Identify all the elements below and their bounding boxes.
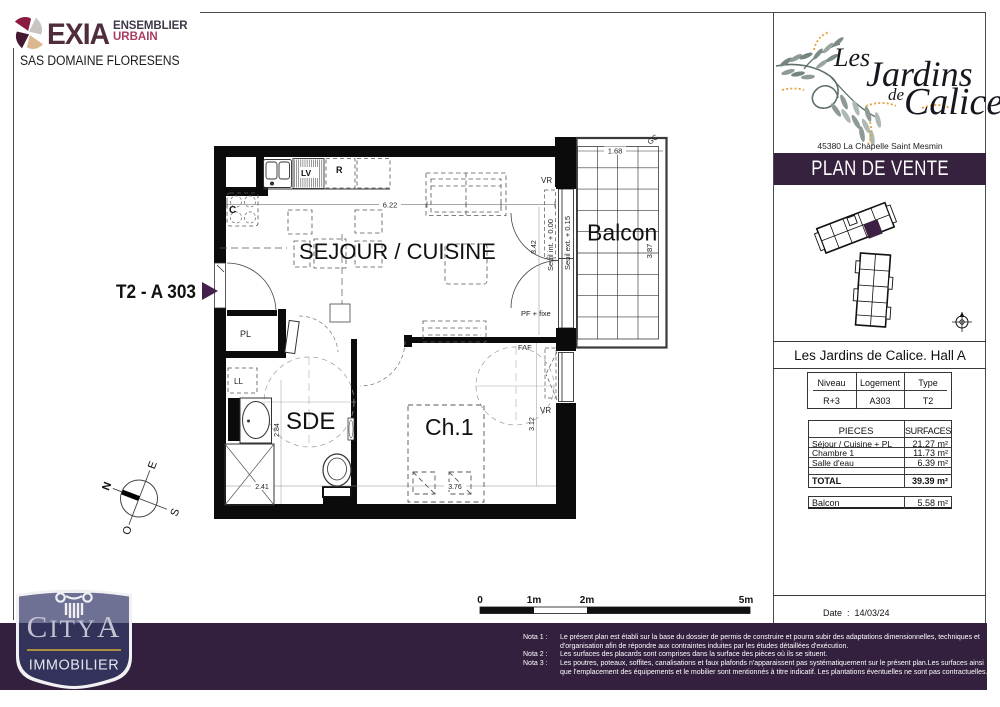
svg-text:2m: 2m	[580, 595, 595, 606]
svg-text:2.84: 2.84	[274, 423, 281, 437]
svg-text:SDE: SDE	[286, 408, 335, 435]
svg-text:E: E	[146, 460, 160, 471]
svg-text:LL: LL	[234, 377, 243, 386]
svg-text:LV: LV	[301, 168, 312, 178]
svg-text:5m: 5m	[739, 595, 754, 606]
svg-text:GC: GC	[646, 132, 661, 147]
svg-text:Seuil int. + 0.00: Seuil int. + 0.00	[546, 219, 555, 271]
svg-text:1.68: 1.68	[608, 147, 623, 156]
svg-text:T2 - A 303: T2 - A 303	[116, 282, 196, 303]
svg-text:Les: Les	[833, 43, 870, 72]
svg-text:3.76: 3.76	[448, 484, 462, 491]
svg-text:Calice: Calice	[904, 81, 1000, 123]
svg-text:S: S	[168, 507, 182, 518]
svg-text:IMMOBILIER: IMMOBILIER	[29, 658, 119, 674]
svg-text:VR: VR	[540, 406, 551, 415]
svg-text:C: C	[229, 205, 236, 216]
svg-text:1m: 1m	[527, 595, 542, 606]
svg-text:O: O	[121, 524, 135, 537]
svg-text:PL: PL	[240, 329, 251, 339]
svg-text:VR: VR	[541, 176, 552, 185]
svg-text:3.42: 3.42	[531, 240, 538, 254]
svg-text:6.22: 6.22	[383, 201, 398, 210]
svg-text:0: 0	[477, 595, 483, 606]
svg-text:de: de	[888, 85, 905, 104]
svg-text:2.41: 2.41	[255, 484, 269, 491]
svg-text:FAF: FAF	[518, 343, 532, 352]
svg-text:Ch.1: Ch.1	[425, 414, 474, 440]
svg-text:PF + fixe: PF + fixe	[521, 309, 551, 318]
svg-text:R: R	[336, 165, 343, 175]
svg-text:Balcon: Balcon	[587, 220, 657, 246]
svg-text:SEJOUR / CUISINE: SEJOUR / CUISINE	[299, 239, 496, 264]
svg-text:Seuil ext. + 0.15: Seuil ext. + 0.15	[563, 216, 572, 270]
svg-text:3.87: 3.87	[645, 244, 654, 259]
svg-text:N: N	[100, 480, 114, 492]
